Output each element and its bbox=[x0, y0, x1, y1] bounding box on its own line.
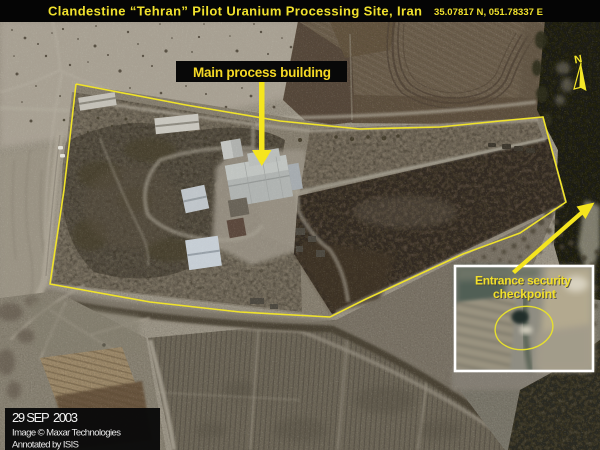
svg-text:35.07817 N, 051.78337 E: 35.07817 N, 051.78337 E bbox=[434, 7, 543, 18]
svg-text:Clandestine “Tehran” Pilot Ur: Clandestine “Tehran” Pilot Uranium Proce… bbox=[48, 4, 422, 19]
svg-text:Annotated by ISIS: Annotated by ISIS bbox=[12, 440, 79, 450]
svg-text:Main process building: Main process building bbox=[193, 65, 331, 80]
svg-text:29 SEP 2003: 29 SEP 2003 bbox=[12, 410, 78, 425]
svg-text:checkpoint: checkpoint bbox=[493, 287, 556, 301]
svg-text:Image © Maxar Technologies: Image © Maxar Technologies bbox=[12, 428, 121, 439]
svg-text:Entrance security: Entrance security bbox=[475, 274, 571, 288]
